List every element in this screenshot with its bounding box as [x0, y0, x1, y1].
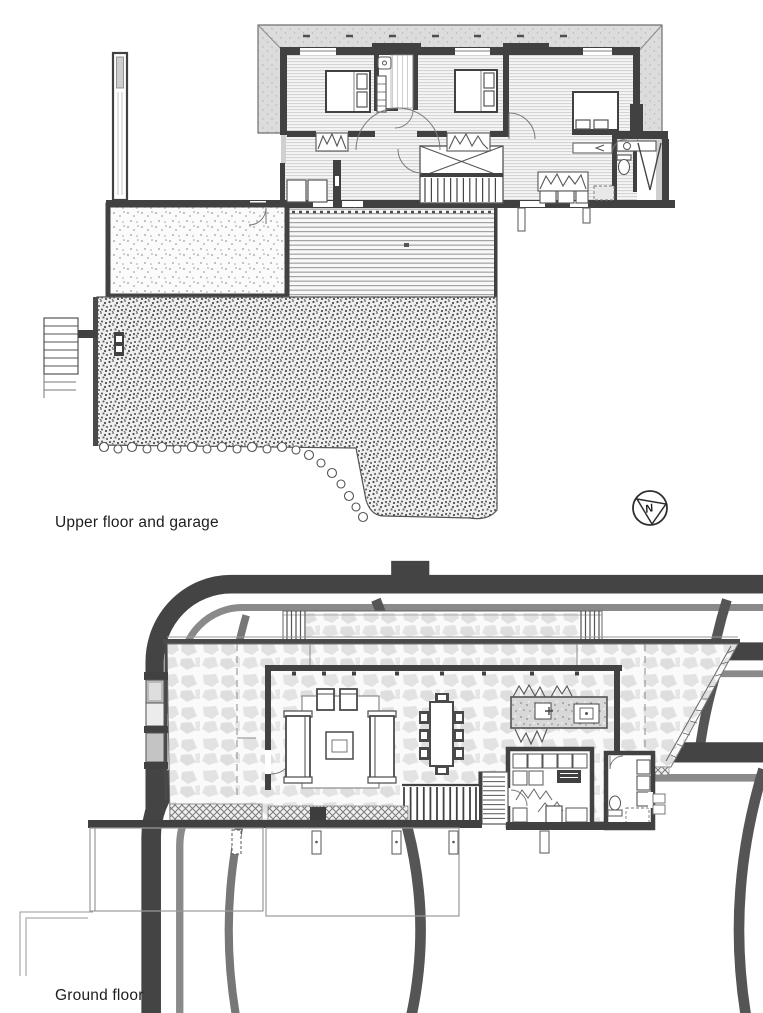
- kitchen-room: [506, 749, 592, 826]
- terrace-edge: [170, 804, 408, 820]
- chimney: [113, 53, 127, 200]
- toilet-icon: [610, 796, 621, 810]
- balustrade: [400, 785, 479, 822]
- sofa: [286, 716, 310, 778]
- floor-plans-drawing: N Upper floor and garage: [0, 0, 763, 1013]
- dining-table: [430, 702, 453, 766]
- vanity-counter: [617, 141, 656, 151]
- shower-tray: [594, 186, 614, 200]
- left-edge-units: [144, 672, 168, 769]
- boulders: [100, 443, 368, 522]
- sofa: [370, 716, 394, 778]
- armchair: [340, 689, 357, 710]
- bedroom-3-bed: [572, 92, 619, 135]
- armchair: [317, 689, 334, 710]
- bedroom-2-bed: [455, 70, 497, 112]
- drawing-sheet: N Upper floor and garage: [0, 0, 763, 1013]
- bedroom-1-bed: [326, 71, 370, 112]
- ground-stair: [479, 772, 508, 824]
- ground-plan-label: Ground floor: [55, 987, 144, 1004]
- bench: [573, 143, 612, 153]
- path-line: [20, 912, 93, 976]
- sink-icon: [378, 57, 391, 69]
- upper-plan-label: Upper floor and garage: [55, 514, 219, 531]
- deck: [288, 208, 590, 298]
- compass-icon: N: [633, 491, 667, 525]
- toilet-icon: [619, 160, 630, 175]
- firepit: [310, 807, 326, 820]
- stairwell: [420, 146, 503, 203]
